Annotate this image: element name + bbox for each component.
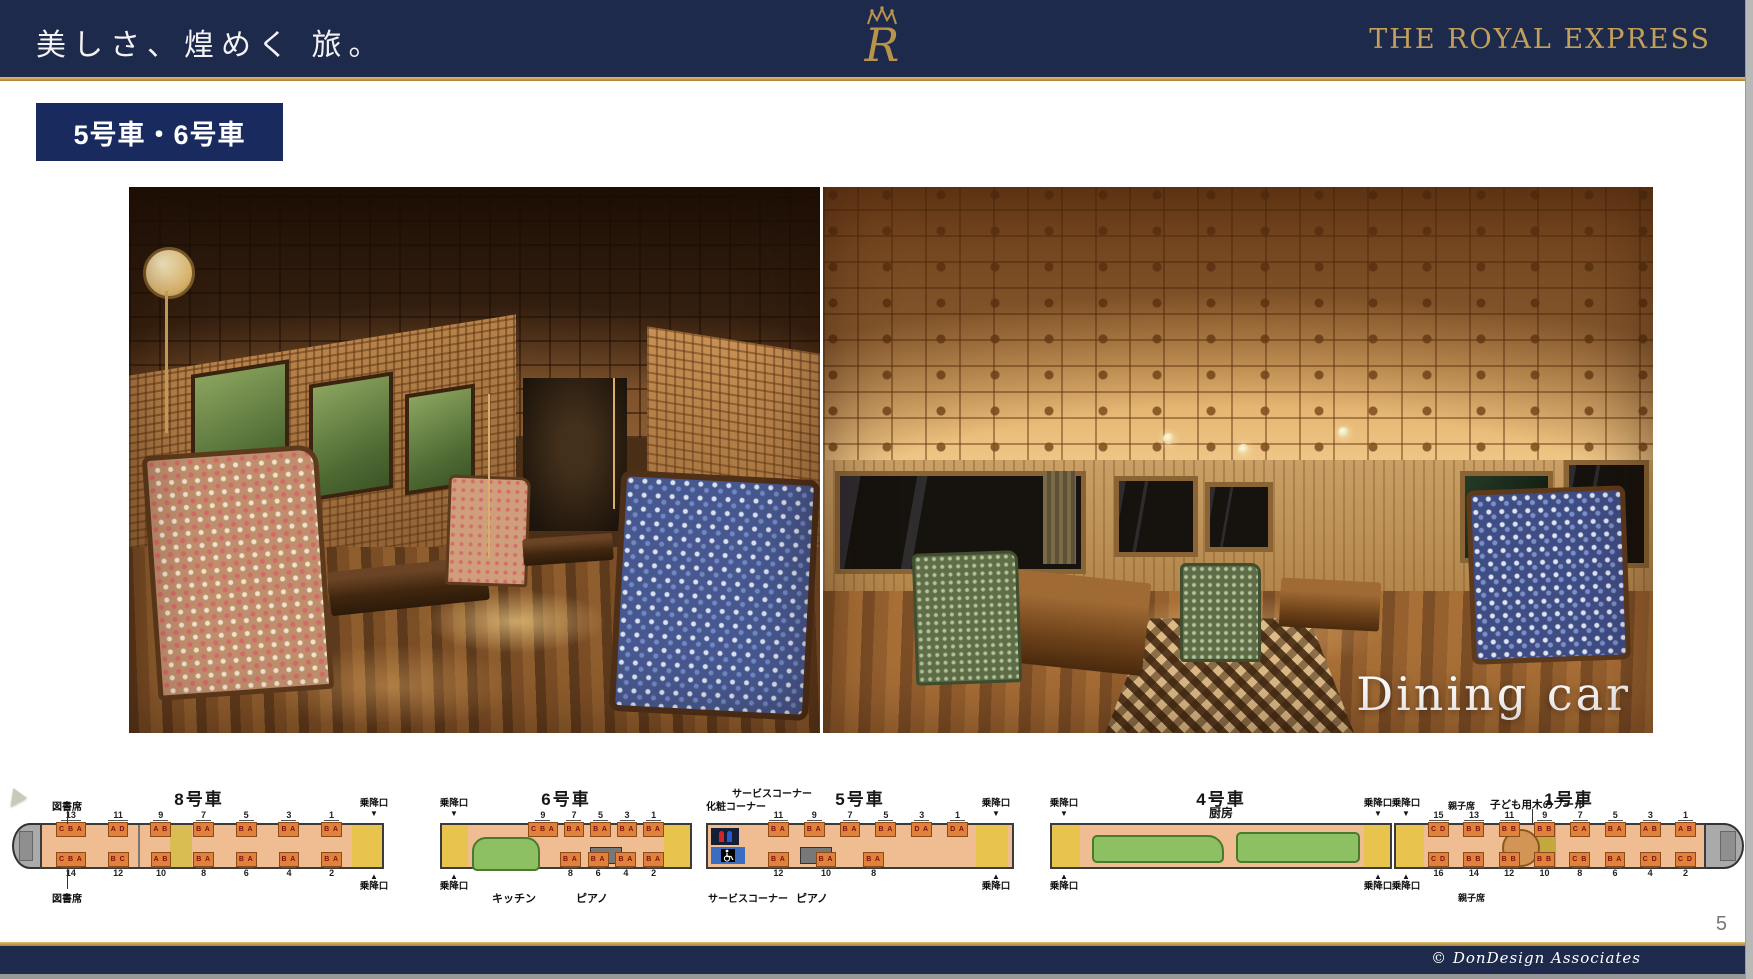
window-art	[191, 359, 289, 508]
library-seat-label: 図書席	[52, 890, 82, 905]
door-label-text: 乗降口	[1392, 881, 1421, 892]
seat-number: 15	[1429, 810, 1449, 821]
brass-pole-art	[613, 378, 615, 509]
page-number: 5	[1716, 913, 1727, 936]
lattice-wall-art	[647, 326, 820, 572]
blue-banquette-art	[1466, 486, 1631, 665]
lounge-car-interior-photo	[129, 187, 820, 733]
seat-group: 9A B	[150, 810, 171, 837]
svg-text:R: R	[863, 18, 899, 72]
seat-letters: B A	[236, 822, 257, 837]
arrow-down-icon: ▼	[992, 809, 1000, 818]
door-label-text: 乗降口	[360, 798, 389, 809]
seat-group: 4B A	[279, 851, 300, 878]
window-art	[1205, 482, 1273, 552]
window-art	[835, 471, 1086, 574]
boarding-door-label: 乗降口 ▼	[974, 798, 1018, 818]
library-seat-label: 図書席	[52, 798, 82, 813]
wood-table-art	[522, 533, 614, 566]
seat-number: 9	[153, 810, 168, 821]
seat-number: 3	[1643, 810, 1658, 821]
seat-group: 3B A	[617, 810, 638, 837]
header-bar: 美しさ、煌めく 旅。 R THE ROYAL EXPRESS	[0, 0, 1753, 77]
seat-letters: B A	[643, 822, 664, 837]
seat-letters: B C	[108, 852, 129, 867]
seat-group: 10B B	[1534, 851, 1555, 878]
table-lamp-art	[1238, 444, 1249, 455]
seat-group: 6B A	[236, 851, 257, 878]
seat-number: 6	[591, 867, 606, 878]
floral-armchair-art	[141, 444, 333, 700]
seat-letters: A B	[1640, 822, 1661, 837]
seat-letters: B A	[816, 852, 837, 867]
seat-number: 7	[196, 810, 211, 821]
seat-group: 6B A	[588, 851, 609, 878]
seat-number: 6	[239, 867, 254, 878]
car-diagram-5: 5号車 サービスコーナー 化粧コーナー 11B A9B A7B A5B A3D …	[706, 785, 1014, 917]
parquet-floor-art	[1105, 618, 1354, 733]
seat-number: 12	[108, 867, 128, 878]
seat-group: 12B C	[108, 851, 129, 878]
arrow-up-icon: ▲	[370, 872, 378, 881]
service-corner-label: サービスコーナー	[708, 890, 788, 905]
seat-number: 5	[593, 810, 608, 821]
seat-group: 1B A	[643, 810, 664, 837]
car-floor	[1050, 823, 1392, 869]
seat-group: 7B A	[840, 810, 861, 837]
seat-number: 5	[878, 810, 893, 821]
seat-group: 5B A	[875, 810, 896, 837]
car-diagram-1: 1号車 親子席 子ども用木のプール 15C D13B B11B B9B B7C …	[1394, 785, 1744, 917]
green-armchair-art	[1180, 563, 1261, 662]
seat-letters: B B	[1499, 852, 1520, 867]
scrollbar[interactable]	[1745, 0, 1753, 979]
seat-number: 16	[1429, 867, 1449, 878]
arrow-up-icon: ▲	[1374, 872, 1382, 881]
seat-group: 15C D	[1428, 810, 1449, 837]
makeup-corner-label: 化粧コーナー	[706, 798, 766, 813]
piano-label: ピアノ	[796, 890, 828, 906]
car-diagram-6: 6号車 9C B A7B A5B A3B A1B A 8B A6B A4B A2…	[440, 785, 692, 917]
car-diagram-4: 4号車 厨房 乗降口 ▼ 乗降口 ▲ 乗降口 ▼ 乗降口 ▲	[1050, 785, 1392, 917]
dining-car-caption: Dining car	[1356, 667, 1631, 721]
window-art	[405, 383, 475, 495]
kitchen-area	[472, 837, 540, 871]
seat-letters: C B	[1569, 852, 1590, 867]
seat-letters: B A	[588, 852, 609, 867]
piano-label: ピアノ	[576, 890, 608, 906]
boarding-door-label: 乗降口 ▲	[352, 872, 396, 892]
crown-r-monogram-icon: R	[854, 5, 900, 73]
seat-letters: C D	[1428, 852, 1449, 867]
seat-group: 10B A	[816, 851, 837, 878]
seat-group: 1D A	[947, 810, 968, 837]
seat-group: 9B B	[1534, 810, 1555, 837]
seat-number: 2	[324, 867, 339, 878]
header-gold-divider	[0, 77, 1753, 81]
lattice-wall-art	[129, 315, 516, 606]
seat-number: 9	[807, 810, 822, 821]
seat-group: 1B A	[321, 810, 342, 837]
seat-group: 5B A	[1605, 810, 1626, 837]
seat-letters: A B	[150, 822, 171, 837]
seat-letters: B A	[863, 852, 884, 867]
seat-number: 1	[1678, 810, 1693, 821]
kids-wooden-pool-label: 子ども用木のプール	[1490, 797, 1585, 812]
seat-group: 8C B	[1569, 851, 1590, 878]
seat-row-top: 11B A9B A7B A5B A3D A1D A	[768, 810, 968, 837]
train-floorplan-strip: 8号車 図書席 13C B A11A D9A B7B A5B A3B A1B A…	[0, 785, 1753, 917]
window-art	[1114, 476, 1199, 557]
header-tagline: 美しさ、煌めく 旅。	[36, 20, 386, 64]
seat-row-top: 13C B A11A D9A B7B A5B A3B A1B A	[56, 810, 342, 837]
boarding-door-label: 乗降口 ▲	[1042, 872, 1086, 892]
seat-group: 2C D	[1675, 851, 1696, 878]
seat-group: 2B A	[643, 851, 664, 878]
seat-letters: B B	[1499, 822, 1520, 837]
galley-label: 厨房	[1050, 804, 1392, 821]
seat-number: 7	[843, 810, 858, 821]
seat-letters: B A	[590, 822, 611, 837]
seat-number: 10	[1534, 867, 1554, 878]
seat-number: 5	[239, 810, 254, 821]
seat-letters: B A	[321, 822, 342, 837]
seat-number: 12	[768, 867, 788, 878]
boarding-door-label: 乗降口 ▼	[432, 798, 476, 818]
dining-table-art	[985, 567, 1152, 676]
seat-letters: B A	[768, 852, 789, 867]
seat-number: 3	[281, 810, 296, 821]
seat-group: 9C B A	[528, 810, 558, 837]
seat-letters: B A	[1605, 822, 1626, 837]
arrow-down-icon: ▼	[370, 809, 378, 818]
corridor-vanishing-point-art	[523, 378, 627, 531]
boarding-door-label: 乗降口 ▲	[432, 872, 476, 892]
seat-letters: A D	[108, 822, 129, 837]
seat-letters: B A	[804, 822, 825, 837]
door-label-text: 乗降口	[360, 881, 389, 892]
boarding-door-label: 乗降口 ▲	[974, 872, 1018, 892]
seat-letters: C B A	[528, 822, 558, 837]
seat-letters: B B	[1534, 852, 1555, 867]
seat-letters: D A	[911, 822, 932, 837]
door-label-text: 乗降口	[1392, 798, 1421, 809]
seat-group: 6B A	[1605, 851, 1626, 878]
seat-letters: C D	[1640, 852, 1661, 867]
seat-group: 10A B	[151, 851, 172, 878]
kitchen-label: キッチン	[492, 890, 536, 906]
arrow-up-icon: ▲	[450, 872, 458, 881]
seat-letters: B A	[321, 852, 342, 867]
seat-number: 14	[1464, 867, 1484, 878]
seat-group: 5B A	[236, 810, 257, 837]
window-art	[309, 371, 393, 501]
seat-letters: B A	[875, 822, 896, 837]
seat-row-bottom: 12B A10B A8B A	[768, 851, 884, 878]
seat-group: 7B A	[193, 810, 214, 837]
seat-number: 11	[108, 810, 128, 821]
car-number-badge: 5号車・6号車	[36, 103, 283, 161]
seat-letters: B A	[560, 852, 581, 867]
arrow-down-icon: ▼	[1374, 809, 1382, 818]
footer-bar: © DonDesign Associates	[0, 946, 1753, 974]
seat-number: 8	[196, 867, 211, 878]
boarding-door-label: 乗降口 ▲	[1384, 872, 1428, 892]
arrow-up-icon: ▲	[992, 872, 1000, 881]
arrow-down-icon: ▼	[1060, 809, 1068, 818]
globe-lamp-art	[143, 247, 195, 299]
seat-number: 2	[646, 867, 661, 878]
coffered-ceiling-art	[823, 187, 1653, 471]
seat-letters: B A	[768, 822, 789, 837]
blue-floral-chair-art	[608, 470, 819, 721]
seat-number: 10	[151, 867, 171, 878]
seat-letters: B A	[193, 852, 214, 867]
seat-group: 7B A	[564, 810, 585, 837]
table-lamp-art	[1163, 433, 1174, 444]
parent-child-seat-label: 親子席	[1458, 891, 1485, 904]
seat-number: 9	[535, 810, 550, 821]
seat-letters: B B	[1463, 852, 1484, 867]
seat-letters: A B	[151, 852, 172, 867]
boarding-door-label: 乗降口 ▼	[1042, 798, 1086, 818]
seat-number: 1	[324, 810, 339, 821]
seat-group: 9B A	[804, 810, 825, 837]
seat-row-bottom: 16C D14B B12B B10B B8C B6B A4C D2C D	[1428, 851, 1696, 878]
seat-letters: B A	[1605, 852, 1626, 867]
dining-table-art	[1278, 578, 1380, 632]
seat-row-top: 9C B A7B A5B A3B A1B A	[528, 810, 664, 837]
seat-number: 5	[1608, 810, 1623, 821]
galley-equipment-area	[1092, 835, 1224, 863]
seat-group: 8B A	[560, 851, 581, 878]
arrow-up-icon: ▲	[1402, 872, 1410, 881]
seat-letters: B A	[840, 822, 861, 837]
train-nose	[1702, 823, 1744, 869]
seat-group: 11B A	[768, 810, 789, 837]
coffered-ceiling-art	[129, 187, 820, 438]
brass-pole-art	[488, 394, 490, 558]
window-art	[1564, 460, 1649, 568]
window-edge	[0, 974, 1753, 979]
seat-group: 3D A	[911, 810, 932, 837]
seat-number: 7	[566, 810, 581, 821]
mouse-cursor	[11, 788, 28, 809]
door-label-text: 乗降口	[982, 798, 1011, 809]
seat-number: 4	[1643, 867, 1658, 878]
seat-letters: C A	[1570, 822, 1591, 837]
boarding-door-label: 乗降口 ▼	[352, 798, 396, 818]
seat-number: 14	[61, 867, 81, 878]
seat-letters: B A	[236, 852, 257, 867]
lamp-pole-art	[165, 291, 168, 433]
seat-group: 5B A	[590, 810, 611, 837]
wall-art	[823, 460, 1653, 607]
seat-number: 10	[816, 867, 836, 878]
door-label-text: 乗降口	[1050, 798, 1079, 809]
seat-group: 12B A	[768, 851, 789, 878]
seat-number: 4	[618, 867, 633, 878]
wheelchair-icon	[711, 847, 745, 864]
seat-group: 12B B	[1499, 851, 1520, 878]
seat-group: 14C B A	[56, 851, 86, 878]
seat-group: 13C B A	[56, 810, 86, 837]
seat-number: 6	[1607, 867, 1622, 878]
seat-letters: C D	[1675, 852, 1696, 867]
door-label-text: 乗降口	[440, 881, 469, 892]
seat-number: 2	[1678, 867, 1693, 878]
wood-table-art	[328, 556, 491, 616]
seat-number: 12	[1499, 867, 1519, 878]
brand-title: THE ROYAL EXPRESS	[1369, 24, 1711, 55]
door-label-text: 乗降口	[1050, 881, 1079, 892]
seat-number: 3	[914, 810, 929, 821]
seat-group: 7C A	[1570, 810, 1591, 837]
wood-floor-art	[129, 547, 820, 733]
seat-letters: B A	[643, 852, 664, 867]
car-diagram-8: 8号車 図書席 13C B A11A D9A B7B A5B A3B A1B A…	[12, 785, 386, 917]
seat-group: 16C D	[1428, 851, 1449, 878]
seat-number: 8	[866, 867, 881, 878]
seat-letters: B A	[279, 852, 300, 867]
seat-letters: C B A	[56, 822, 86, 837]
table-lamp-art	[1338, 427, 1349, 438]
dining-car-interior-photo: Dining car	[823, 187, 1653, 733]
seat-letters: B A	[278, 822, 299, 837]
seat-group: 11B B	[1499, 810, 1520, 837]
floral-armchair-art	[445, 474, 531, 587]
seat-letters: B A	[617, 822, 638, 837]
seat-letters: B A	[564, 822, 585, 837]
seat-number: 4	[281, 867, 296, 878]
seat-number: 1	[950, 810, 965, 821]
seat-group: 2B A	[321, 851, 342, 878]
door-label-text: 乗降口	[982, 881, 1011, 892]
copyright-credit: © DonDesign Associates	[1431, 949, 1641, 967]
seat-group: 11A D	[108, 810, 129, 837]
galley-equipment-area	[1236, 832, 1360, 863]
seat-number: 1	[646, 810, 661, 821]
seat-letters: B B	[1463, 822, 1484, 837]
seat-number: 3	[620, 810, 635, 821]
seat-group: 1A B	[1675, 810, 1696, 837]
seat-group: 4C D	[1640, 851, 1661, 878]
restroom-icon	[711, 828, 739, 845]
seat-number: 8	[1572, 867, 1587, 878]
seat-letters: B A	[615, 852, 636, 867]
green-armchair-art	[912, 550, 1022, 685]
seat-number: 11	[769, 810, 789, 821]
seat-number: 8	[563, 867, 578, 878]
seat-group: 14B B	[1463, 851, 1484, 878]
arrow-down-icon: ▼	[1402, 809, 1410, 818]
seat-letters: A B	[1675, 822, 1696, 837]
seat-group: 8B A	[863, 851, 884, 878]
seat-group: 8B A	[193, 851, 214, 878]
seat-letters: D A	[947, 822, 968, 837]
boarding-door-label: 乗降口 ▼	[1384, 798, 1428, 818]
seat-letters: C B A	[56, 852, 86, 867]
seat-row-bottom: 8B A6B A4B A2B A	[560, 851, 664, 878]
curtain-art	[1043, 471, 1076, 564]
door-label-text: 乗降口	[440, 798, 469, 809]
seat-letters: B A	[193, 822, 214, 837]
car-title: 6号車	[440, 785, 692, 810]
seat-letters: B B	[1534, 822, 1555, 837]
arrow-up-icon: ▲	[1060, 872, 1068, 881]
arrow-down-icon: ▼	[450, 809, 458, 818]
seat-letters: C D	[1428, 822, 1449, 837]
seat-group: 3A B	[1640, 810, 1661, 837]
seat-group: 13B B	[1463, 810, 1484, 837]
seat-group: 4B A	[615, 851, 636, 878]
wood-floor-art	[823, 591, 1653, 733]
seat-row-top: 15C D13B B11B B9B B7C A5B A3A B1A B	[1428, 810, 1696, 837]
window-art	[1460, 471, 1553, 563]
seat-row-bottom: 14C B A12B C10A B8B A6B A4B A2B A	[56, 851, 342, 878]
seat-group: 3B A	[278, 810, 299, 837]
parent-child-seat-label: 親子席	[1448, 799, 1475, 812]
